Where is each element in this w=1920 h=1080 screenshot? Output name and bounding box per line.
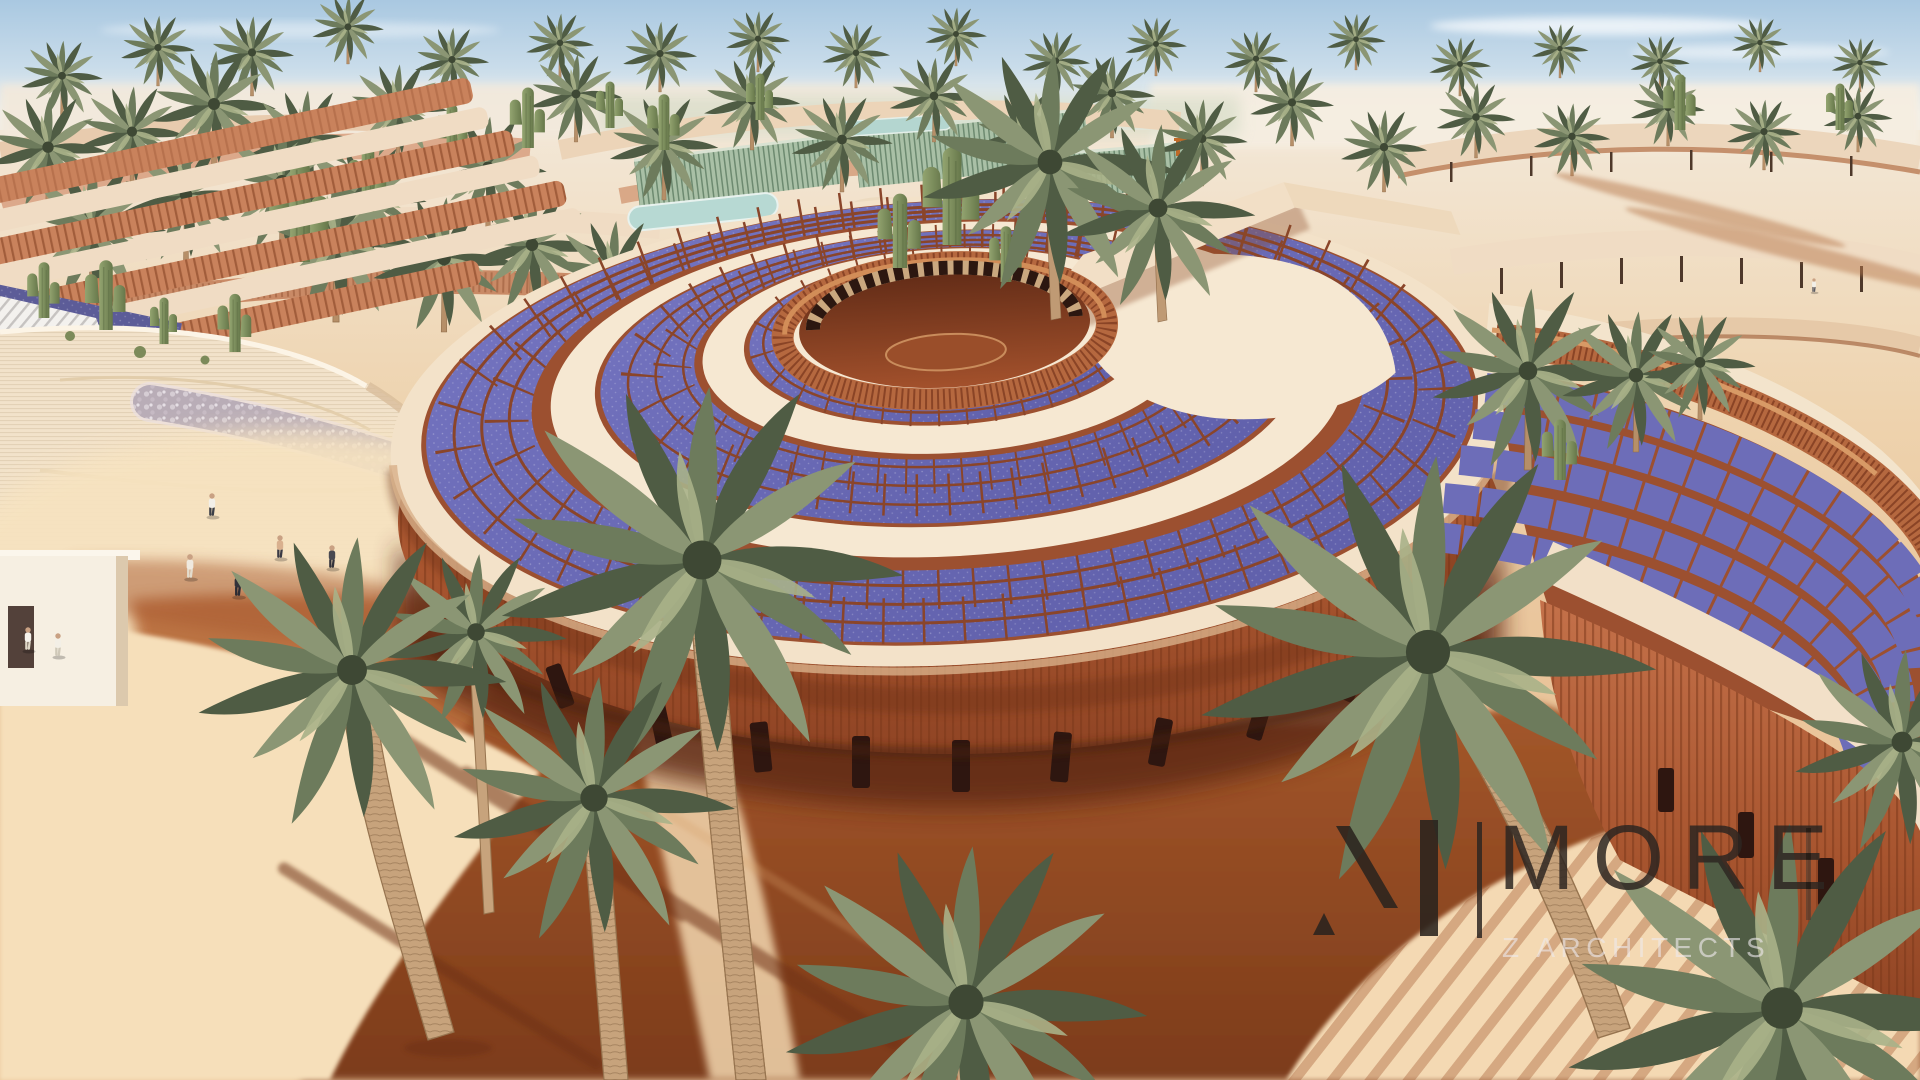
architectural-render: MORE Z ARCHITECTS <box>0 0 1920 1080</box>
render-scene <box>0 0 1920 1080</box>
left-white-structure <box>0 550 140 706</box>
cloud <box>1430 17 1770 35</box>
